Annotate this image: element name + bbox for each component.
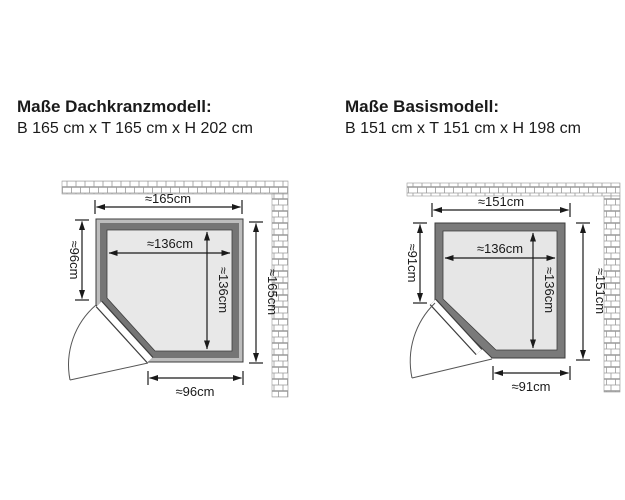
dimension-bottom xyxy=(148,371,243,385)
dimension-right xyxy=(249,222,263,363)
dimension-top-label: ≈151cm xyxy=(478,194,524,209)
door-swing-arc xyxy=(410,303,435,378)
dimension-right-label: ≈165cm xyxy=(265,269,280,315)
dimension-inner-width-label: ≈136cm xyxy=(477,241,523,256)
door-swing-edge xyxy=(412,359,492,378)
dimension-bottom-label: ≈96cm xyxy=(176,384,215,399)
dachkranz-heading: Maße Dachkranzmodell: B 165 cm x T 165 c… xyxy=(17,96,317,140)
dachkranz-title: Maße Dachkranzmodell: xyxy=(17,96,317,117)
dimension-inner-width-label: ≈136cm xyxy=(147,236,193,251)
dachkranz-dimensions-text: B 165 cm x T 165 cm x H 202 cm xyxy=(17,119,317,140)
dimension-left-label: ≈91cm xyxy=(405,244,420,283)
basis-dimensions-text: B 151 cm x T 151 cm x H 198 cm xyxy=(345,119,625,140)
dimension-inner-depth-label: ≈136cm xyxy=(542,267,557,313)
basis-heading: Maße Basismodell: B 151 cm x T 151 cm x … xyxy=(345,96,625,140)
dimension-bottom-label: ≈91cm xyxy=(512,379,551,394)
dimension-inner-depth-label: ≈136cm xyxy=(216,267,231,313)
dimension-top-label: ≈165cm xyxy=(145,191,191,206)
dachkranz-floorplan: ≈165cm ≈96cm ≈165cm ≈136cm ≈136cm ≈96cm xyxy=(20,175,315,410)
door-swing-edge xyxy=(70,363,148,380)
basis-floorplan: ≈151cm ≈91cm ≈151cm ≈136cm ≈136cm ≈91cm xyxy=(330,175,625,410)
dimension-right xyxy=(576,223,590,360)
door-swing-arc xyxy=(69,305,96,380)
dimension-left-label: ≈96cm xyxy=(67,241,82,280)
basis-title: Maße Basismodell: xyxy=(345,96,625,117)
dimension-right-label: ≈151cm xyxy=(593,268,608,314)
dimension-bottom xyxy=(493,366,570,380)
